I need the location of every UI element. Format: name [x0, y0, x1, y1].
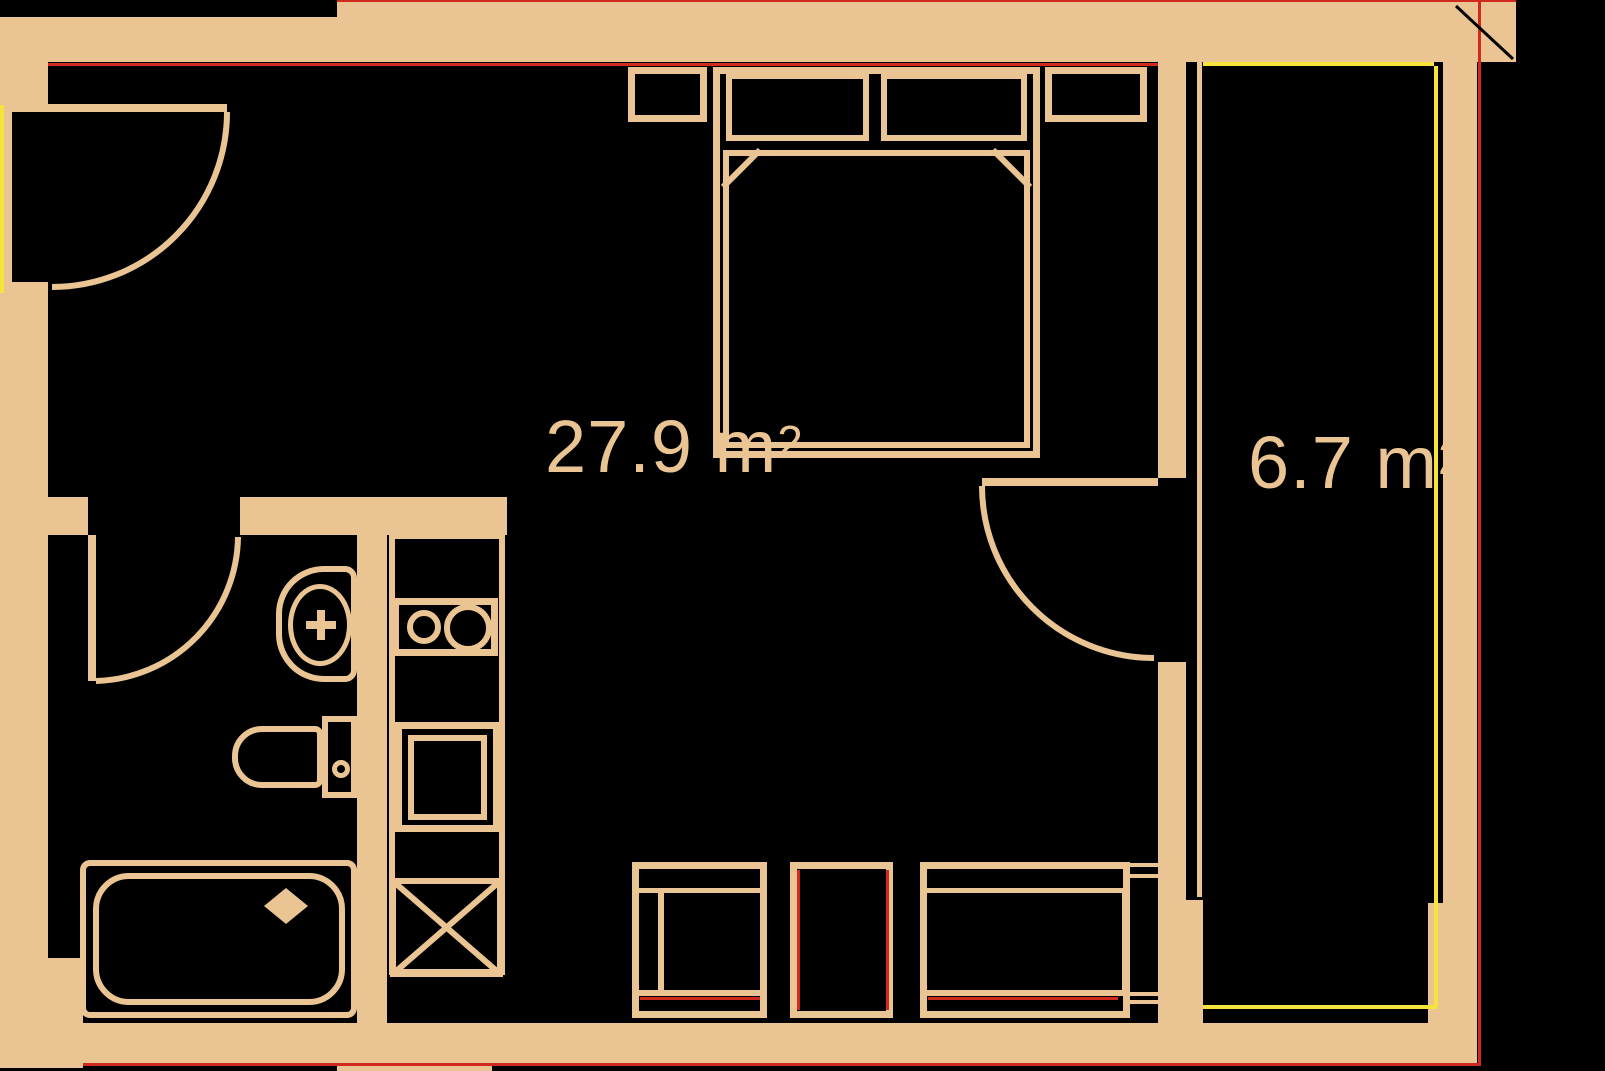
blanket-fold-right	[993, 150, 1030, 187]
entrance-door-swing-arc	[52, 112, 227, 287]
plan-annotations	[0, 0, 1605, 1071]
side-room-area-label: 6.7 m2	[1248, 426, 1465, 500]
side-room-door-swing-arc	[982, 486, 1154, 658]
area-superscript: 2	[777, 416, 804, 468]
wall-miter-joint	[1456, 6, 1513, 59]
area-unit: m	[1354, 421, 1438, 504]
bathroom-door-swing-arc	[96, 537, 238, 681]
area-unit: m	[693, 405, 777, 488]
main-room-area-label: 27.9 m2	[545, 410, 804, 484]
bathtub-faucet-icon	[264, 888, 308, 924]
area-value: 6.7	[1248, 421, 1354, 504]
area-superscript: 2	[1438, 432, 1465, 484]
area-value: 27.9	[545, 405, 693, 488]
blanket-fold-left	[723, 150, 760, 187]
floor-plan: 27.9 m2 6.7 m2	[0, 0, 1605, 1071]
